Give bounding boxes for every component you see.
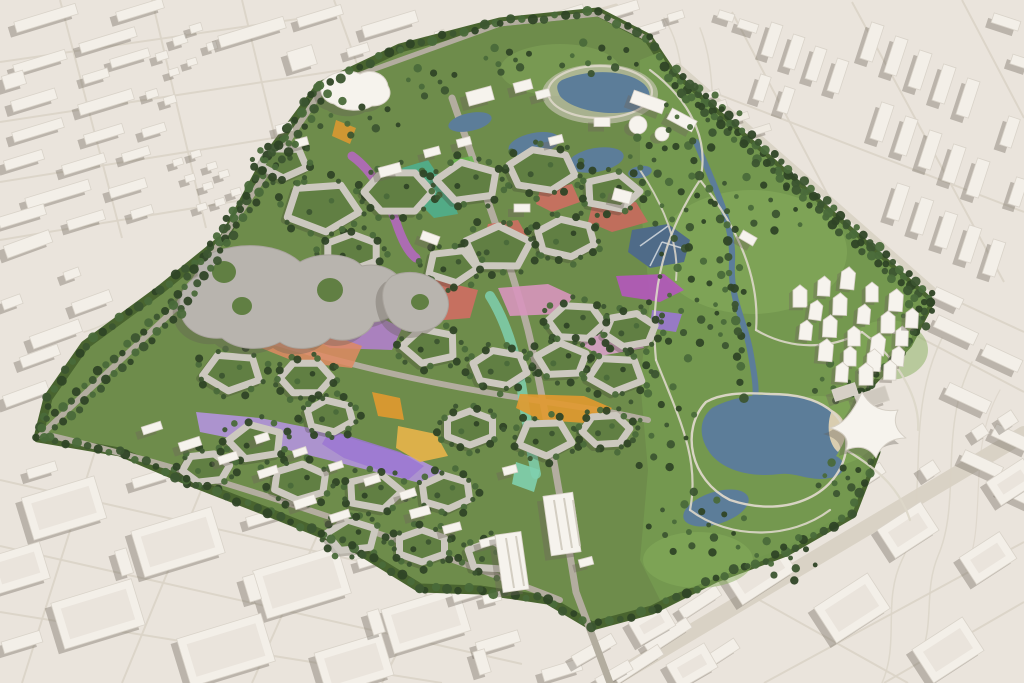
tree	[602, 319, 610, 327]
tree	[450, 284, 458, 292]
tree	[713, 302, 718, 307]
tree	[347, 132, 354, 139]
tree	[432, 583, 440, 591]
tree	[192, 482, 199, 489]
tree	[313, 83, 322, 92]
tree	[812, 388, 818, 394]
residential-block	[275, 464, 326, 500]
tree	[287, 396, 294, 403]
tree	[671, 82, 678, 89]
tree	[739, 393, 749, 403]
tree	[307, 160, 314, 167]
tree	[221, 478, 228, 485]
tree	[770, 226, 778, 234]
tree	[485, 203, 490, 208]
tree	[653, 169, 661, 177]
tree	[703, 93, 709, 99]
tree	[627, 613, 635, 621]
tree	[552, 190, 557, 195]
tree	[426, 172, 434, 180]
tree	[634, 62, 639, 67]
tree	[866, 239, 873, 246]
tree	[672, 593, 680, 601]
tree	[736, 110, 742, 116]
tree	[628, 205, 633, 210]
tree	[329, 379, 337, 387]
tree	[461, 542, 466, 547]
tree	[262, 508, 272, 518]
tree	[472, 570, 477, 575]
tree	[438, 31, 446, 39]
tree	[345, 66, 353, 74]
tree	[555, 256, 563, 264]
tree	[727, 284, 734, 291]
tree	[744, 563, 750, 569]
tree	[274, 376, 281, 383]
tree	[476, 265, 484, 273]
tree	[385, 106, 391, 112]
tree	[555, 380, 560, 385]
tree	[448, 363, 453, 368]
tree	[707, 324, 713, 330]
tree	[760, 182, 767, 189]
tree	[174, 290, 183, 299]
tree	[670, 548, 677, 555]
tree	[476, 251, 481, 256]
tree	[922, 322, 930, 330]
tree	[623, 47, 629, 53]
tree	[449, 326, 457, 334]
tree	[719, 106, 725, 112]
tree	[262, 181, 269, 188]
tree	[479, 556, 485, 562]
tree	[352, 468, 357, 473]
tree	[929, 308, 935, 314]
tree	[475, 489, 483, 497]
tree	[662, 532, 668, 538]
tree	[587, 354, 595, 362]
tree	[467, 539, 474, 546]
tree	[387, 568, 395, 576]
tree	[61, 440, 69, 448]
tree	[772, 210, 780, 218]
tree	[486, 342, 491, 347]
tree	[415, 584, 424, 593]
tree	[72, 387, 81, 396]
tree	[669, 383, 676, 390]
tree	[296, 523, 304, 531]
tree	[688, 173, 695, 180]
tree	[439, 470, 444, 475]
tree	[471, 27, 479, 35]
tree	[580, 315, 586, 321]
tree	[579, 195, 587, 203]
tree	[366, 59, 375, 68]
tree	[152, 327, 161, 336]
tree	[570, 294, 575, 299]
tree	[739, 127, 745, 133]
tree	[643, 348, 650, 355]
tree	[545, 459, 553, 467]
tree	[722, 181, 727, 186]
tree	[454, 202, 462, 210]
tree	[50, 385, 58, 393]
tree	[695, 171, 705, 181]
tree	[806, 202, 812, 208]
tree	[338, 97, 346, 105]
tree	[792, 564, 800, 572]
tree	[770, 571, 777, 578]
tree	[667, 293, 672, 298]
tree	[384, 47, 394, 57]
tree	[284, 123, 293, 132]
tree	[131, 333, 141, 343]
tree	[397, 530, 402, 535]
tree	[152, 463, 159, 470]
tree	[257, 147, 264, 154]
tree	[288, 483, 294, 489]
tree	[406, 78, 411, 83]
tree	[217, 247, 223, 253]
tree	[321, 237, 329, 245]
tree	[733, 353, 741, 361]
tree	[531, 241, 539, 249]
tree	[339, 537, 346, 544]
tree	[309, 428, 314, 433]
tree	[731, 316, 741, 326]
tree	[142, 456, 151, 465]
tree	[390, 530, 398, 538]
tree	[636, 386, 644, 394]
tree	[203, 250, 212, 259]
tree	[620, 367, 626, 373]
tree	[784, 165, 793, 174]
tree	[509, 149, 517, 157]
tree	[131, 456, 139, 464]
tree	[603, 210, 611, 218]
tree	[501, 220, 506, 225]
tree	[361, 211, 366, 216]
residential-block	[422, 475, 469, 509]
tree	[850, 498, 858, 506]
tree	[556, 413, 564, 421]
tree	[177, 309, 187, 319]
tree	[281, 446, 288, 453]
tree	[722, 342, 729, 349]
tree	[625, 351, 630, 356]
tree	[213, 388, 220, 395]
tree	[829, 522, 839, 532]
tree	[419, 84, 425, 90]
tree	[248, 386, 255, 393]
tree	[591, 224, 599, 232]
tree	[594, 7, 602, 15]
tree	[649, 342, 654, 347]
tree	[336, 73, 346, 83]
tree	[110, 355, 119, 364]
blob-courtyard	[317, 278, 343, 302]
tree	[183, 273, 191, 281]
tree	[895, 265, 904, 274]
tree	[514, 383, 522, 391]
tree	[553, 453, 560, 460]
tree	[567, 378, 575, 386]
tree	[352, 513, 360, 521]
tree	[548, 162, 554, 168]
tree	[162, 322, 168, 328]
tree	[384, 193, 390, 199]
tree	[616, 406, 621, 411]
tree	[497, 391, 504, 398]
tree	[275, 193, 283, 201]
tree	[466, 478, 471, 483]
tree	[351, 221, 358, 228]
tree	[706, 280, 712, 286]
tree	[144, 297, 152, 305]
tree	[656, 53, 664, 61]
tree	[595, 447, 600, 452]
tree	[634, 323, 640, 329]
tree	[659, 313, 665, 319]
residential-block	[605, 314, 655, 347]
tree	[416, 213, 423, 220]
lawn	[643, 532, 753, 588]
tree	[673, 264, 681, 272]
tree	[426, 560, 433, 567]
blob-courtyard	[411, 294, 429, 310]
tree	[277, 201, 284, 208]
tree	[814, 193, 820, 199]
tree	[750, 220, 757, 227]
tree	[716, 256, 723, 263]
tree	[84, 442, 92, 450]
tree	[646, 142, 653, 149]
tree	[278, 176, 286, 184]
tree	[650, 453, 657, 460]
tree	[768, 198, 773, 203]
tree	[572, 334, 580, 342]
tree	[628, 154, 633, 159]
tree	[579, 38, 587, 46]
tree	[665, 463, 673, 471]
tree	[259, 414, 264, 419]
tree	[438, 436, 445, 443]
tree	[688, 276, 695, 283]
tree	[232, 497, 241, 506]
tree	[367, 466, 374, 473]
tree	[344, 430, 352, 438]
tree	[421, 92, 428, 99]
tree	[748, 205, 754, 211]
tree	[440, 559, 445, 564]
tree	[652, 221, 658, 227]
tree	[586, 387, 591, 392]
tree	[586, 622, 596, 632]
tree	[701, 577, 710, 586]
tree	[840, 464, 847, 471]
tree	[550, 360, 556, 366]
tree	[697, 315, 705, 323]
tree	[578, 616, 586, 624]
tree	[284, 147, 294, 157]
tree	[500, 269, 507, 276]
tree	[639, 195, 647, 203]
tree	[543, 373, 550, 380]
tree	[329, 113, 334, 118]
tree	[646, 299, 652, 305]
tree	[731, 531, 736, 536]
tree	[276, 496, 281, 501]
tree	[252, 199, 260, 207]
tree	[689, 137, 696, 144]
tree	[307, 230, 314, 237]
tree	[660, 203, 665, 208]
tree	[875, 242, 885, 252]
tree	[317, 123, 323, 129]
tree	[497, 20, 504, 27]
residential-block	[548, 306, 604, 339]
tree	[450, 485, 456, 491]
tree	[708, 199, 714, 205]
tree	[659, 319, 664, 324]
tree	[484, 249, 490, 255]
tree	[236, 200, 242, 206]
tree	[233, 468, 241, 476]
tree	[242, 192, 250, 200]
tree	[716, 120, 726, 130]
tree	[751, 560, 760, 569]
tree	[105, 449, 112, 456]
tree	[229, 474, 234, 479]
tree	[170, 473, 180, 483]
tree	[903, 286, 913, 296]
tree	[446, 550, 453, 557]
tree	[462, 346, 469, 353]
tree	[199, 377, 204, 382]
tree	[428, 188, 435, 195]
tree	[911, 277, 921, 287]
tree	[148, 337, 155, 344]
tree	[207, 241, 213, 247]
tree	[199, 271, 209, 281]
tree	[585, 60, 591, 66]
tree	[294, 130, 303, 139]
tree	[887, 274, 896, 283]
tree	[664, 103, 669, 108]
residential-block	[538, 219, 594, 256]
tree	[336, 179, 341, 184]
tree	[32, 434, 40, 442]
tree	[597, 407, 604, 414]
tree	[433, 169, 438, 174]
tree	[708, 128, 716, 136]
tree	[476, 157, 481, 162]
tree	[416, 258, 423, 265]
tree	[445, 555, 453, 563]
tree	[631, 353, 638, 360]
tree	[762, 537, 770, 545]
tree	[726, 270, 732, 276]
tree	[678, 188, 685, 195]
tree	[482, 346, 490, 354]
tree	[832, 480, 838, 486]
tree	[518, 269, 523, 274]
tree	[304, 475, 310, 481]
tree	[407, 562, 412, 567]
tree	[417, 480, 422, 485]
tree	[94, 444, 103, 453]
tree	[189, 264, 199, 274]
tree	[82, 343, 90, 351]
tree	[399, 214, 407, 222]
tree	[816, 482, 822, 488]
tree	[600, 193, 606, 199]
tree	[752, 159, 760, 167]
tree	[454, 587, 462, 595]
tree	[705, 118, 710, 123]
tree	[722, 287, 728, 293]
tree	[561, 11, 570, 20]
tree	[539, 318, 547, 326]
tree	[803, 190, 809, 196]
tree	[461, 239, 469, 247]
tree	[245, 499, 252, 506]
tree	[271, 420, 278, 427]
tree	[651, 370, 659, 378]
tree	[421, 206, 426, 211]
tree	[441, 415, 448, 422]
tree	[199, 381, 207, 389]
tree	[528, 171, 534, 177]
tree	[88, 332, 98, 342]
tree	[414, 64, 422, 72]
tree	[245, 418, 253, 426]
tree	[822, 473, 827, 478]
tree	[654, 335, 662, 343]
tree	[447, 538, 452, 543]
tree	[302, 175, 307, 180]
tree	[449, 408, 457, 416]
tree	[820, 377, 825, 382]
tree	[533, 592, 541, 600]
tree	[452, 465, 459, 472]
tree	[741, 289, 747, 295]
tree	[191, 290, 197, 296]
tree	[851, 240, 860, 249]
tree	[397, 47, 404, 54]
tree	[554, 336, 561, 343]
tree	[384, 251, 391, 258]
tree	[261, 379, 266, 384]
tree	[51, 409, 59, 417]
tree	[287, 224, 295, 232]
tree	[213, 256, 222, 265]
tree	[577, 162, 585, 170]
tree	[302, 123, 308, 129]
tree	[659, 252, 664, 257]
tree	[272, 164, 278, 170]
tree	[734, 327, 742, 335]
tree	[475, 448, 480, 453]
tree	[845, 476, 850, 481]
tree	[381, 539, 386, 544]
tree	[691, 412, 697, 418]
tree	[570, 449, 575, 454]
tree	[213, 232, 221, 240]
tree	[638, 418, 643, 423]
tree	[593, 301, 601, 309]
tree	[479, 256, 486, 263]
